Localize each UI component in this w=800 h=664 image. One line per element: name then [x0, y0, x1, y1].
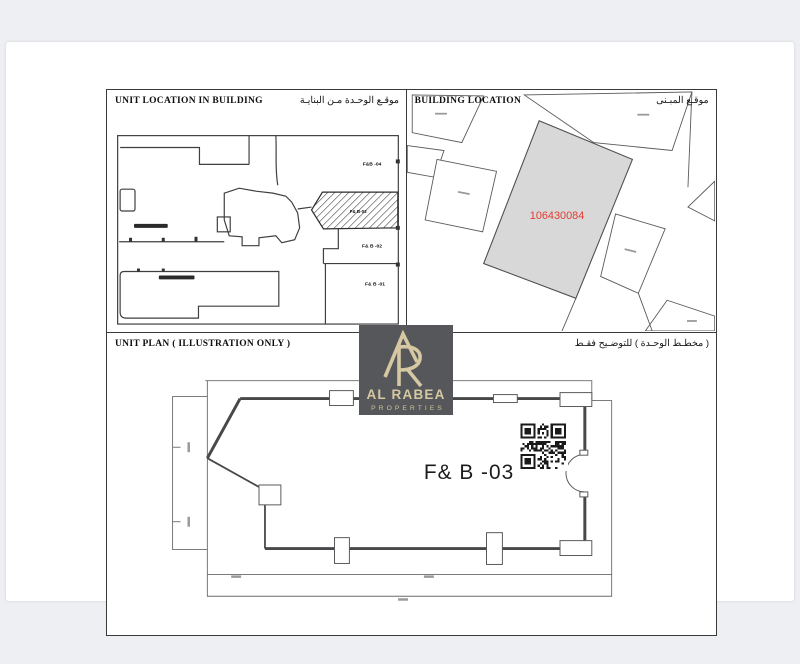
unit-label-fb01: F& B -01	[365, 281, 385, 287]
unit-location-title-arabic: موقـع الوحـدة مـن البنايـة	[300, 95, 399, 106]
al-rabea-logo: AL RABEA PROPERTIES	[359, 325, 453, 415]
document-paper: UNIT LOCATION IN BUILDING موقـع الوحـدة …	[6, 42, 794, 601]
page-background: UNIT LOCATION IN BUILDING موقـع الوحـدة …	[0, 0, 800, 664]
building-floorplan-drawing: F&B -04 F& B-03 F& B -02 F& B -01	[107, 90, 405, 331]
unit-plan-title: UNIT PLAN ( ILLUSTRATION ONLY )	[115, 339, 290, 349]
unit-plan-label: F& B -03	[424, 461, 514, 484]
illegible-dimension-label	[187, 442, 433, 600]
site-map-drawing: 106430084	[407, 90, 715, 331]
unit-location-panel: UNIT LOCATION IN BUILDING موقـع الوحـدة …	[106, 89, 407, 333]
parcel-number: 106430084	[529, 210, 584, 222]
ar-monogram-icon	[385, 334, 421, 386]
building-location-title: BUILDING LOCATION	[415, 96, 522, 106]
unit-plan-title-arabic: ( مخطـط الوحـدة ) للتوضـيح فقـط	[575, 338, 709, 349]
building-location-title-arabic: موقـع المبـنى	[656, 95, 708, 106]
logo-subtitle: PROPERTIES	[371, 405, 445, 412]
qr-code-icon	[518, 421, 568, 471]
logo-name: AL RABEA	[366, 387, 445, 402]
unit-location-title: UNIT LOCATION IN BUILDING	[115, 96, 263, 106]
building-location-panel: BUILDING LOCATION موقـع المبـنى	[406, 89, 717, 333]
unit-label-fb03-highlighted: F& B-03	[350, 209, 367, 214]
unit-label-fb02: F& B -02	[362, 244, 382, 250]
door-swing	[566, 450, 588, 497]
unit-label-fb04: F&B -04	[363, 161, 382, 167]
